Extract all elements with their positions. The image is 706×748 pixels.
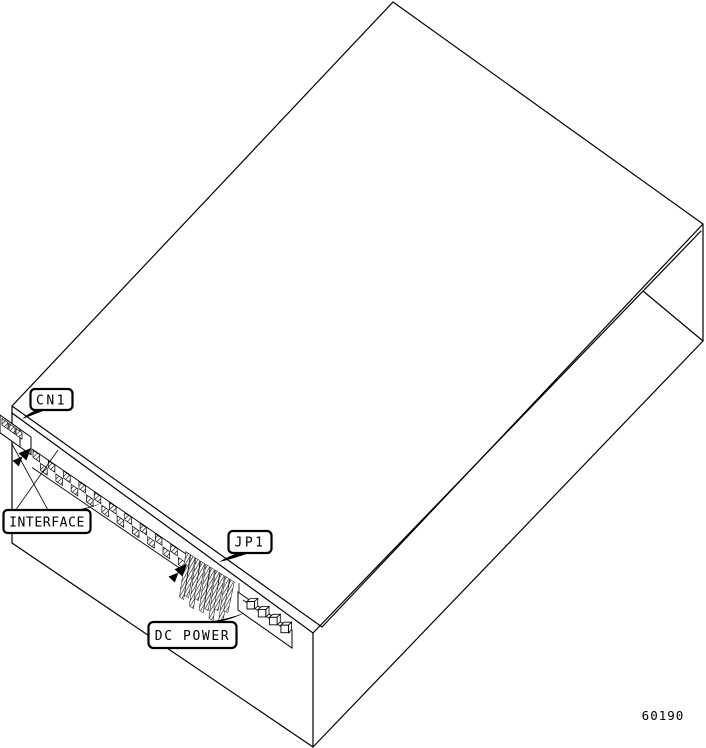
callout-interface-label: INTERFACE <box>9 516 85 531</box>
pin1-arrow-icon <box>169 573 179 583</box>
pin <box>132 526 139 538</box>
connector-cn1 <box>0 415 31 455</box>
pin <box>87 495 94 507</box>
top-left-edge <box>12 2 393 406</box>
diagram-page: CN1 INTERFACE JP1 DC POWER 60190 <box>0 0 706 748</box>
callout-jp1-label: JP1 <box>235 536 266 551</box>
top-right-edge <box>393 2 703 224</box>
callout-jp1: JP1 <box>219 531 272 562</box>
pin <box>102 505 109 517</box>
drive-connector-diagram: CN1 INTERFACE JP1 DC POWER 60190 <box>0 0 706 748</box>
dc-pin-face <box>258 609 266 617</box>
jp1-pins <box>180 552 235 623</box>
pin1-arrow-icon <box>13 457 23 467</box>
dc-pin-face <box>247 602 255 610</box>
callout-cn1-label: CN1 <box>36 394 67 409</box>
bottom-right-edge <box>313 341 703 747</box>
pin <box>117 516 124 528</box>
callout-dc-power-label: DC POWER <box>155 629 230 644</box>
pin <box>148 537 155 549</box>
dc-pin-face <box>270 617 278 625</box>
lid-bottom-edge <box>12 231 701 633</box>
chassis-outline <box>12 2 703 747</box>
lid-top-edge <box>12 224 703 627</box>
pin <box>56 474 63 486</box>
jumper-jp1 <box>180 552 240 623</box>
lid-edges <box>12 224 703 633</box>
pin <box>71 484 78 496</box>
part-number: 60190 <box>642 708 685 723</box>
interface-top-line <box>32 449 186 554</box>
callout-dc-power: DC POWER <box>149 612 247 648</box>
pin <box>163 547 170 559</box>
dc-pin-face <box>281 625 289 633</box>
rear-corner-edge <box>643 291 703 341</box>
callout-cn1: CN1 <box>22 389 73 419</box>
